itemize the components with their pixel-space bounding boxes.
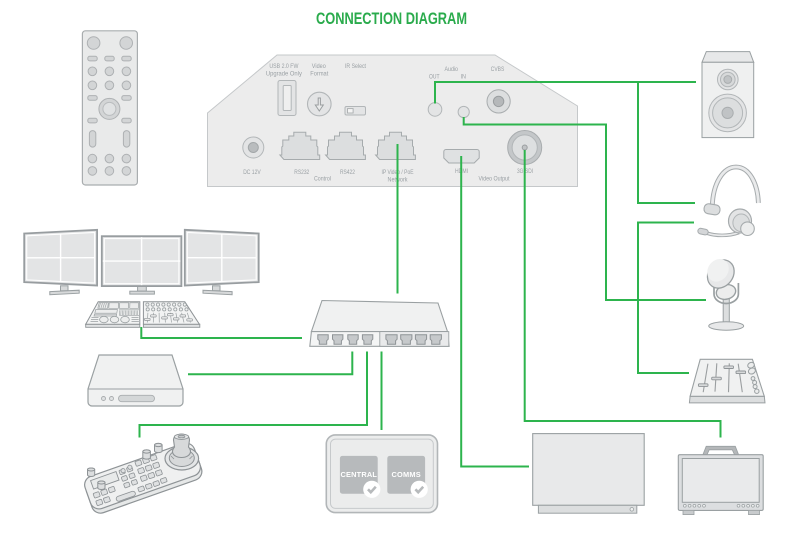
svg-text:Video Output: Video Output [479,176,510,183]
svg-text:OUT: OUT [429,74,440,81]
svg-text:Video: Video [312,63,326,70]
svg-text:IR Select: IR Select [345,63,366,70]
svg-text:CONNECTION DIAGRAM: CONNECTION DIAGRAM [316,10,467,28]
svg-text:COMMS: COMMS [392,470,421,479]
svg-text:USB 2.0 FW: USB 2.0 FW [269,63,298,70]
svg-text:RS422: RS422 [340,169,355,176]
svg-text:Control: Control [314,176,331,183]
svg-text:RS232: RS232 [294,169,309,176]
svg-text:Audio: Audio [445,66,459,73]
svg-text:CVBS: CVBS [491,66,505,73]
svg-text:CENTRAL: CENTRAL [340,470,377,479]
svg-text:Format: Format [310,71,328,78]
svg-text:Upgrade Only: Upgrade Only [266,71,303,78]
svg-text:DC 12V: DC 12V [243,169,261,176]
svg-text:IN: IN [461,74,467,81]
